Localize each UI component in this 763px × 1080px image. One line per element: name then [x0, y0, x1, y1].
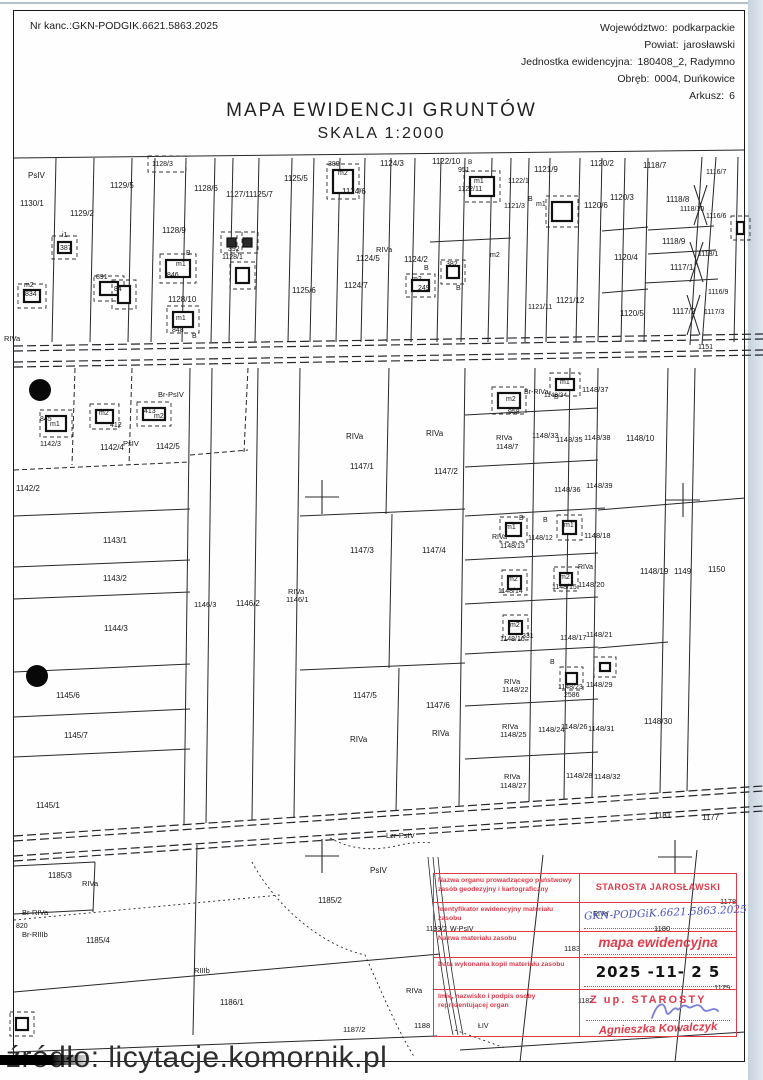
map-label: 1121/12: [556, 296, 585, 305]
map-label: 846: [167, 272, 179, 279]
stamp-row-date: Data wykonania kopii materiału zasobu 20…: [434, 958, 736, 990]
map-label: 1124/5: [356, 254, 380, 263]
map-label: 1145/6: [56, 691, 80, 700]
map-label: 1143/1: [103, 536, 127, 545]
map-label: 1118/9: [662, 237, 686, 246]
map-label: 1124/2: [404, 255, 428, 264]
stamp-identifier-cell: GKN-PODGiK.6621.5863.2025: [580, 903, 736, 932]
map-label: RIVa: [376, 245, 393, 254]
building-footprint: [566, 673, 577, 684]
map-label: m2: [490, 252, 500, 259]
map-label: 1146/1: [286, 595, 308, 604]
map-label: 1147/3: [350, 546, 374, 555]
map-label: Br-RIIIb: [22, 930, 48, 939]
map-label: PsIV: [370, 866, 388, 875]
map-label: 1188: [414, 1021, 430, 1030]
map-label: 1148/23: [558, 684, 583, 691]
map-label: B: [186, 250, 191, 257]
map-label: m1: [474, 178, 484, 185]
map-label: 1125/6: [292, 286, 316, 295]
map-label: 1148/20: [578, 580, 605, 589]
map-label: 1151: [698, 344, 713, 351]
map-label: 1148/39: [586, 481, 613, 490]
map-label: 1148/7: [496, 442, 518, 451]
map-label: Br-RIVa: [22, 908, 49, 917]
stamp-field-identifier: Identyfikator ewidencyjny materiału zaso…: [434, 903, 580, 932]
redaction-dot: [26, 665, 48, 687]
map-label: m2: [338, 170, 348, 177]
stamp-row-authority: Nazwa organu prowadzącego państwowy zasó…: [434, 874, 736, 903]
map-label: RIVa: [346, 432, 364, 441]
map-label: 1125/5: [284, 174, 308, 183]
stamp-field-signature: Imię, nazwisko i podpis osoby reprezentu…: [434, 990, 580, 1036]
map-label: 1122/10: [432, 157, 461, 166]
map-label: 1186/1: [220, 998, 244, 1007]
map-label: RIVa: [4, 334, 21, 343]
map-label: 1122/1: [508, 178, 529, 185]
map-label: m1: [560, 379, 570, 386]
map-label: 249: [418, 285, 430, 292]
map-label: 1120/3: [610, 193, 634, 202]
map-label: 1120/6: [584, 201, 608, 210]
map-label: 382: [446, 261, 458, 268]
map-label: 1148/17: [560, 633, 587, 642]
map-label: 389: [328, 161, 340, 168]
map-label: 1120/2: [590, 159, 614, 168]
map-label: 820: [16, 923, 28, 930]
map-label: B: [519, 515, 524, 522]
map-label: 1148/22: [502, 685, 529, 694]
map-label: RIVa: [432, 729, 450, 738]
stamp-row-signature: Imię, nazwisko i podpis osoby reprezentu…: [434, 990, 736, 1036]
map-label: 84: [114, 286, 122, 293]
map-label: 1145/1: [36, 801, 60, 810]
map-label: 1148/34: [544, 392, 567, 399]
stamp-authority-cell: STAROSTA JAROSŁAWSKI: [580, 874, 736, 902]
map-label: PsIV: [28, 171, 46, 180]
map-label: 1120/4: [614, 253, 638, 262]
map-label: m2: [412, 276, 422, 283]
map-label: 1129/2: [70, 209, 94, 218]
map-label: 331: [522, 633, 534, 640]
map-label: 2586: [564, 692, 580, 699]
stamp-row-identifier: Identyfikator ewidencyjny materiału zaso…: [434, 903, 736, 933]
map-label: 1142/5: [156, 442, 180, 451]
map-label: 1118/7: [643, 161, 667, 170]
map-label: 1142/3: [40, 441, 61, 448]
map-label: 392: [228, 246, 240, 253]
map-label: 412: [110, 422, 122, 429]
map-label: 1122/11: [458, 186, 482, 193]
map-label: 1127/1: [226, 190, 250, 199]
map-label: 1128/1: [222, 254, 243, 261]
map-label: 1116/9: [708, 289, 728, 296]
map-label: 1118/10: [680, 206, 704, 213]
map-label: RIVa: [492, 534, 507, 541]
map-label: RIVa: [82, 879, 99, 888]
map-label: m1: [564, 522, 574, 529]
map-label: B: [456, 285, 461, 292]
map-label: B: [468, 159, 472, 166]
map-label: 1128/10: [168, 295, 197, 304]
map-label: m1: [536, 201, 546, 208]
handwritten-identifier: GKN-PODGiK.6621.5863.2025: [584, 903, 747, 922]
map-label: 1128/6: [194, 184, 218, 193]
map-label: 1147/4: [422, 546, 446, 555]
map-label: 1147/5: [353, 691, 377, 700]
map-label: m1: [50, 421, 60, 428]
map-label: Lzr-PsIV: [386, 831, 415, 840]
map-label: 1148/36: [554, 485, 581, 494]
map-label: 1148/35: [556, 435, 583, 444]
stamp-material-cell: mapa ewidencyjna: [580, 932, 736, 957]
map-label: 1145/7: [64, 731, 88, 740]
map-label: 1117/2: [672, 307, 696, 316]
map-label: 1148/30: [644, 717, 673, 726]
map-label: 1148/25: [500, 730, 527, 739]
map-label: RIVa: [426, 429, 444, 438]
redaction-bar: [0, 1055, 92, 1065]
stamp-field-authority: Nazwa organu prowadzącego państwowy zasó…: [434, 874, 580, 902]
map-label: 1148/10: [626, 434, 655, 443]
map-label: m2: [99, 410, 109, 417]
stamp-date-cell: 2025 -11- 2 5: [580, 958, 736, 989]
map-label: 1149: [674, 567, 692, 576]
map-label: 1148/33: [532, 431, 559, 440]
map-label: 1148/19: [640, 567, 669, 576]
map-label: 1128/3: [152, 161, 173, 168]
map-label: 958: [508, 409, 520, 416]
building-footprint: [243, 238, 252, 247]
map-label: B: [528, 196, 533, 203]
building-footprint: [236, 268, 249, 283]
map-label: 1117/3: [704, 309, 724, 316]
map-label: 1148/26: [561, 722, 588, 731]
building-footprint: [600, 663, 610, 671]
map-label: 1124/7: [344, 281, 368, 290]
registry-stamp: Nazwa organu prowadzącego państwowy zasó…: [433, 873, 737, 1037]
map-label: 1124/6: [342, 187, 366, 196]
map-label: 1148/37: [582, 385, 609, 394]
map-label: Br-PsIV: [158, 390, 184, 399]
map-label: 1148/28: [566, 771, 593, 780]
map-label: RIVa: [406, 986, 423, 995]
map-label: 1181: [654, 811, 672, 820]
map-label: 1143/2: [103, 574, 127, 583]
map-label: B: [550, 659, 555, 666]
map-label: RIVa: [504, 772, 521, 781]
stamp-field-material: Nazwa materiału zasobu: [434, 932, 580, 957]
map-label: RIVa: [578, 564, 593, 571]
map-label: 1125/7: [249, 190, 273, 199]
map-label: 1116/7: [706, 169, 726, 176]
map-label: 1148/38: [584, 433, 611, 442]
dotted-line: [584, 954, 732, 955]
map-label: 1148/15: [552, 584, 577, 591]
map-label: 1187/2: [343, 1025, 365, 1034]
map-label: m1: [506, 524, 516, 531]
map-label: 834: [25, 291, 37, 298]
map-label: 891: [96, 274, 108, 281]
map-label: 1148/27: [500, 781, 527, 790]
map-label: B: [543, 517, 548, 524]
redaction-dot: [29, 379, 51, 401]
map-label: 1124/3: [380, 159, 404, 168]
map-label: 1150: [708, 565, 726, 574]
map-label: 1148/29: [586, 680, 613, 689]
map-label: 1185/4: [86, 936, 110, 945]
map-label: 1147/1: [350, 462, 374, 471]
map-label: 1185/3: [48, 871, 72, 880]
signer-name: Agnieszka Kowalczyk: [580, 1020, 736, 1037]
stamp-row-material: Nazwa materiału zasobu mapa ewidencyjna: [434, 932, 736, 958]
map-label: m2: [506, 396, 516, 403]
map-label: 1146/3: [194, 600, 216, 609]
map-label: 1142/2: [16, 484, 40, 493]
map-label: 1148/32: [594, 772, 621, 781]
building-footprint: [16, 1018, 28, 1030]
stamp-field-date: Data wykonania kopii materiału zasobu: [434, 958, 580, 989]
map-label: 1142/4: [100, 443, 124, 452]
map-label: 387: [60, 245, 72, 252]
copy-date-stamp: 2025 -11- 2 5: [580, 958, 736, 981]
map-label: 1148/18: [584, 531, 611, 540]
authority-name: STAROSTA JAROSŁAWSKI: [580, 874, 736, 892]
map-label: 1128/9: [162, 226, 186, 235]
map-label: 1148/21: [586, 630, 613, 639]
map-label: 1177: [702, 813, 720, 822]
map-label: i1: [62, 232, 68, 239]
map-label: RIVa: [496, 433, 513, 442]
dotted-line: [584, 986, 732, 987]
map-label: m2: [24, 282, 34, 289]
map-label: PsIV: [123, 439, 139, 448]
map-label: 1148/14: [498, 588, 523, 595]
map-label: m1: [176, 315, 186, 322]
material-name: mapa ewidencyjna: [580, 932, 736, 950]
map-label: 1147/6: [426, 701, 450, 710]
map-label: 1118/8: [666, 195, 690, 204]
map-label: 1116/6: [706, 213, 726, 220]
map-label: B: [424, 265, 429, 272]
dotted-line: [584, 928, 732, 929]
scanned-cadastral-map-page: Nr kanc.:GKN-PODGIK.6621.5863.2025 Wojew…: [0, 0, 763, 1080]
map-label: 1130/1: [20, 199, 44, 208]
map-label: RIVa: [350, 735, 368, 744]
map-label: 951: [458, 167, 470, 174]
map-label: RIIIb: [194, 966, 210, 975]
map-label: 1144/3: [104, 624, 128, 633]
map-label: 1117/1: [670, 263, 694, 272]
map-label: 1185/2: [318, 896, 342, 905]
map-label: 1148/13: [500, 543, 525, 550]
map-label: 1120/5: [620, 309, 644, 318]
map-label: 1148/12: [528, 535, 553, 542]
stamp-signature-cell: Z up. STAROSTY Agnieszka Kowalczyk: [580, 990, 736, 1036]
map-label: m2: [510, 622, 520, 629]
map-label: B: [192, 333, 197, 340]
map-label: 1129/5: [110, 181, 134, 190]
map-label: 1148/31: [588, 724, 615, 733]
map-label: m2: [154, 413, 164, 420]
map-label: 1121/11: [528, 304, 552, 311]
map-label: 1121/3: [504, 203, 525, 210]
building-footprint: [552, 202, 572, 221]
map-label: 1121/9: [534, 165, 558, 174]
map-label: 848: [172, 327, 184, 334]
map-label: m2: [508, 576, 518, 583]
map-label: 1146/2: [236, 599, 260, 608]
map-label: 1147/2: [434, 467, 458, 476]
building-footprint: [737, 222, 744, 234]
map-label: m1: [176, 261, 186, 268]
map-label: m2: [560, 574, 570, 581]
map-label: 1118/1: [698, 251, 718, 258]
